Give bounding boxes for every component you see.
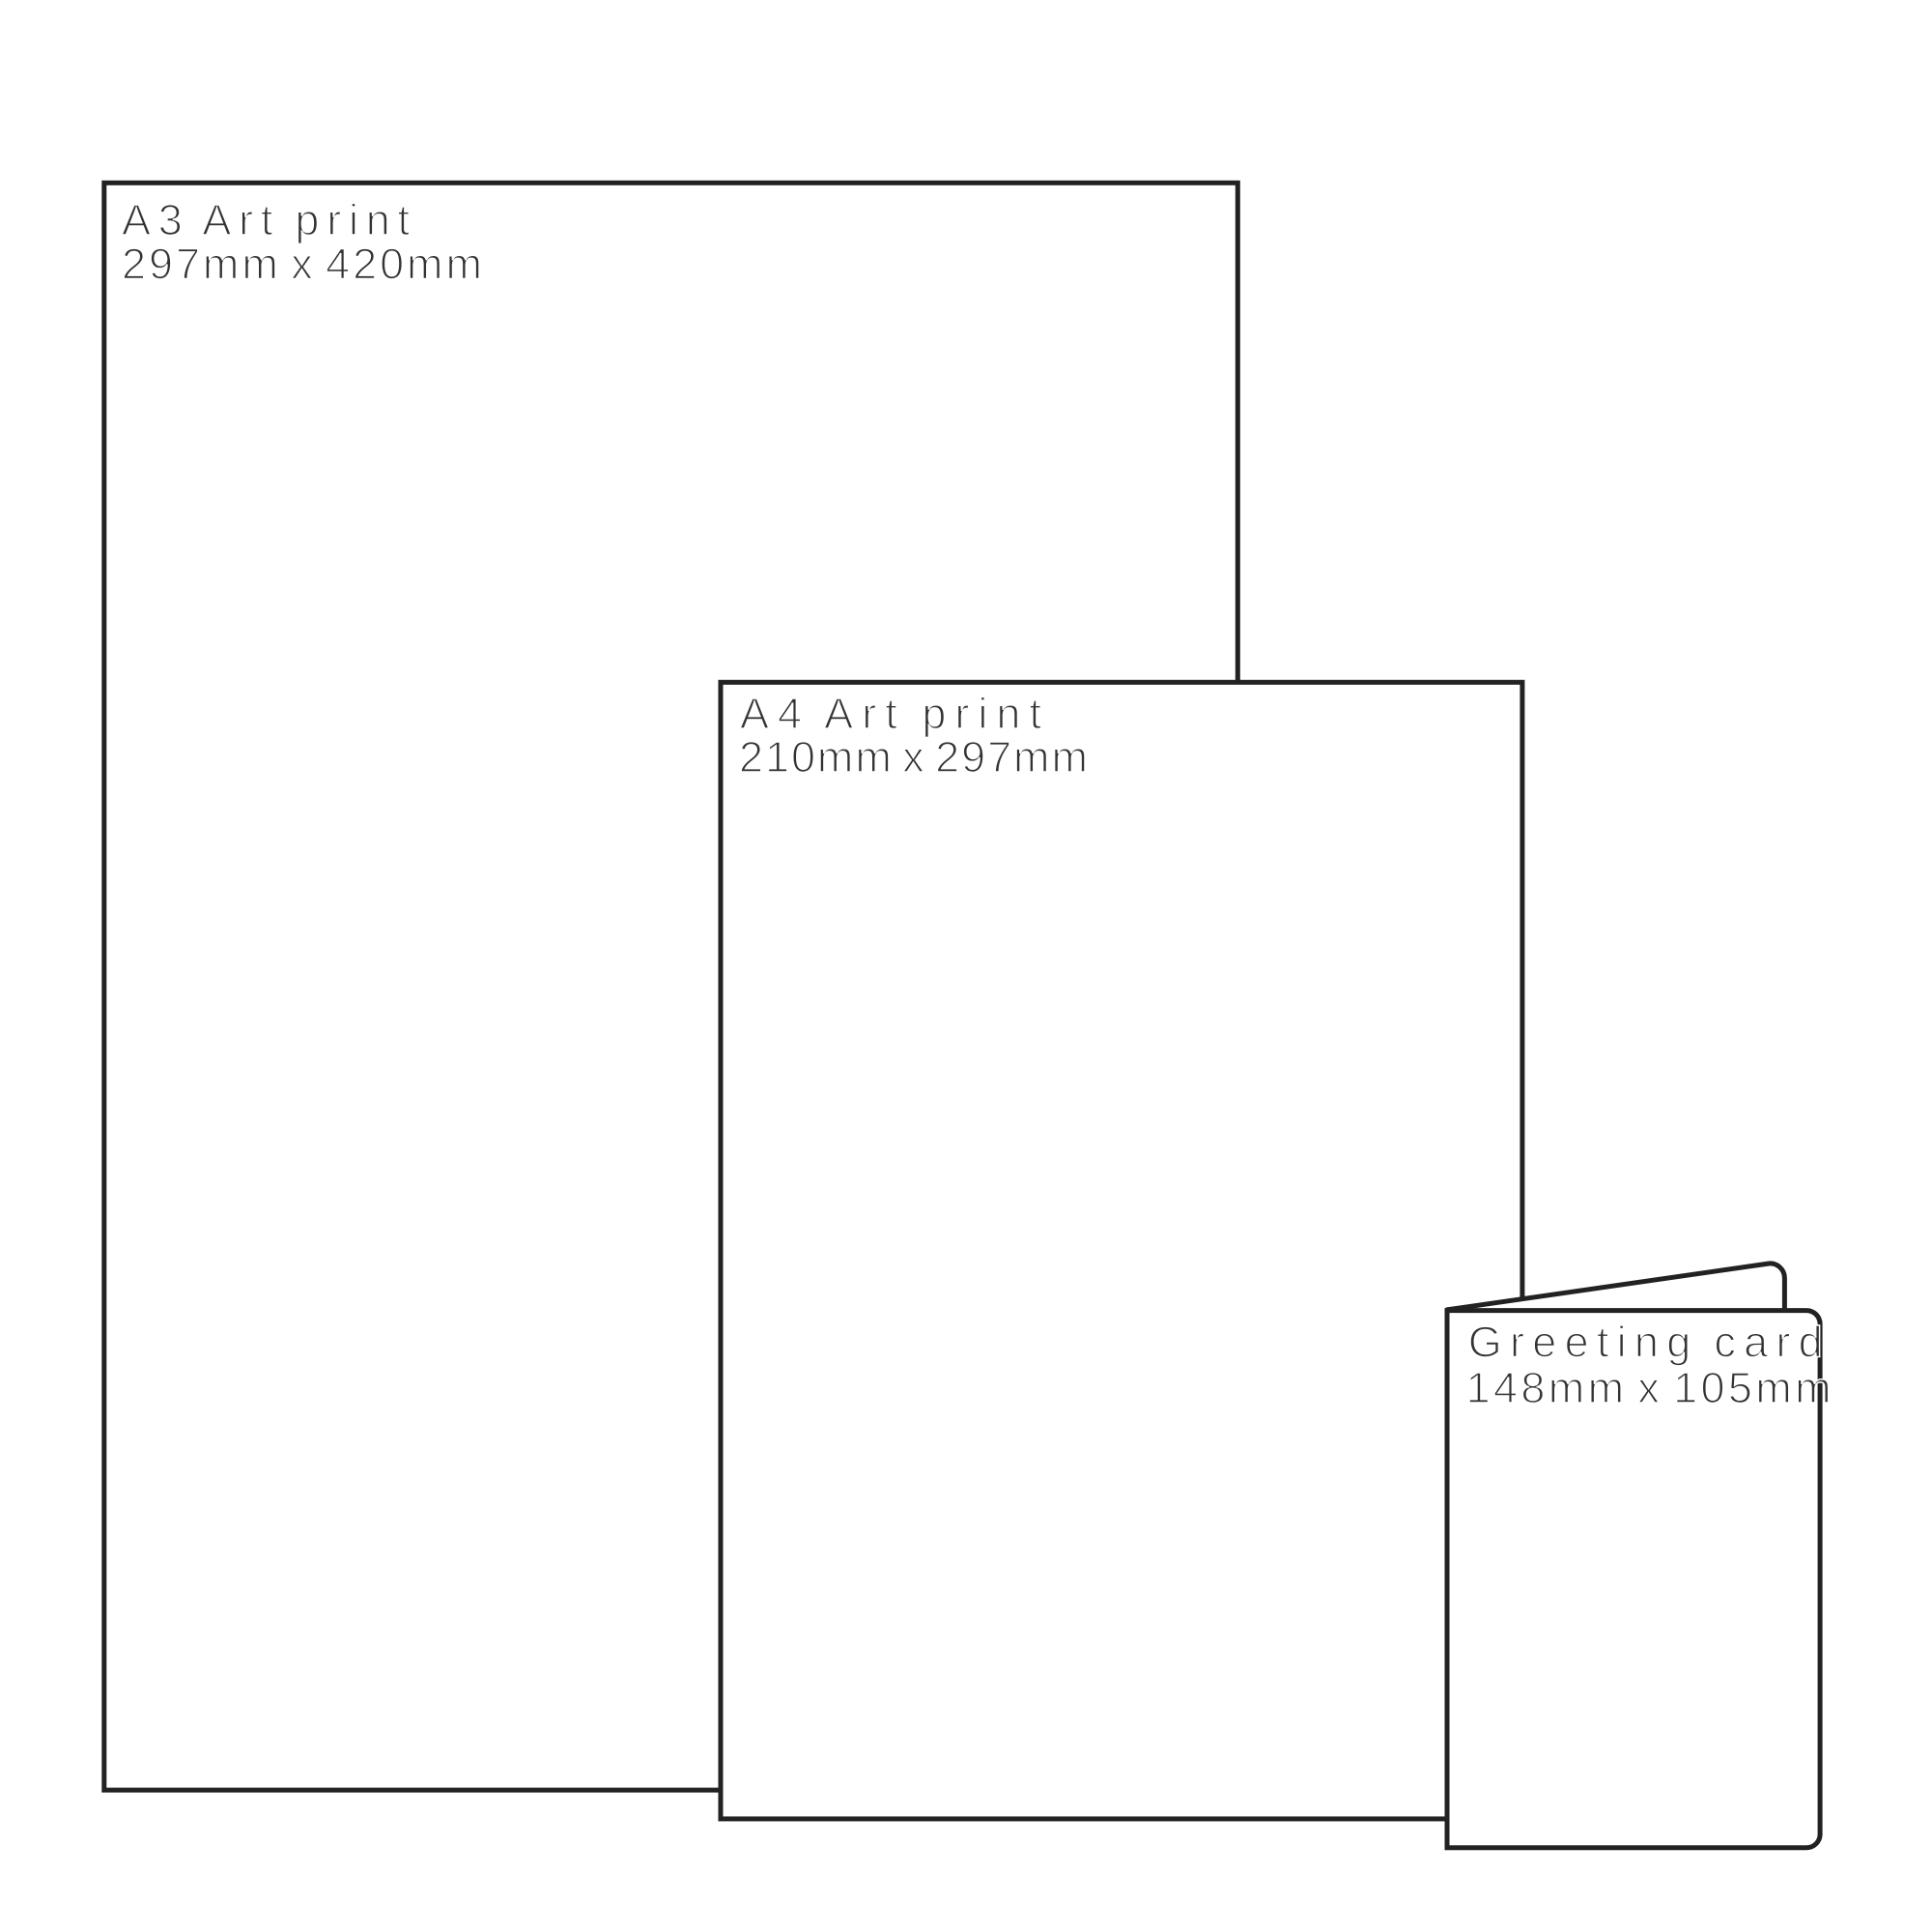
svg-text:A4 Art print: A4 Art print [740, 689, 1041, 738]
svg-text:148mm x 105mm: 148mm x 105mm [1466, 1363, 1832, 1412]
svg-text:297mm x 420mm: 297mm x 420mm [122, 240, 482, 289]
svg-text:210mm x 297mm: 210mm x 297mm [739, 732, 1088, 781]
svg-text:A3 Art print: A3 Art print [122, 195, 410, 244]
